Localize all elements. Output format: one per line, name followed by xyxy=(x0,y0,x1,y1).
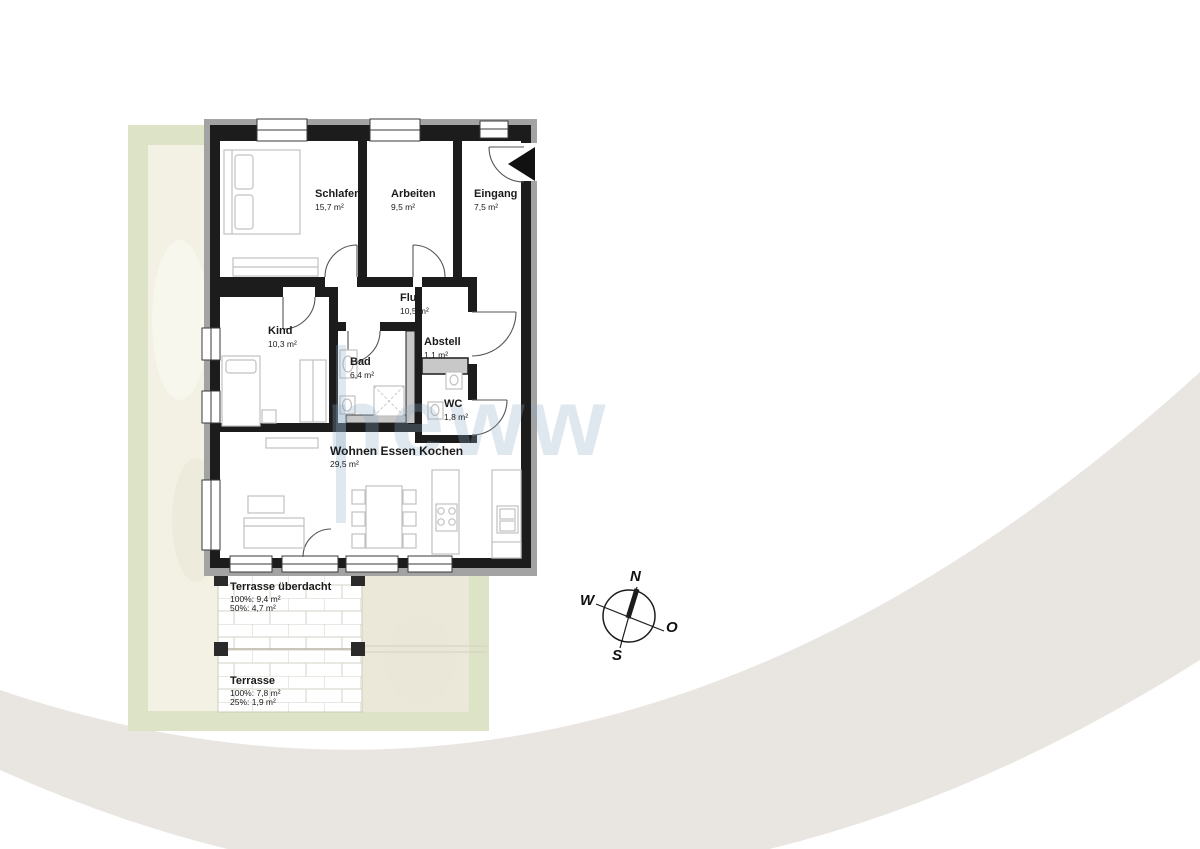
shelf-kind xyxy=(262,410,276,423)
label-terrasse-ueberdacht: Terrasse überdacht 100%: 9,4 m² 50%: 4,7… xyxy=(230,582,331,613)
room-name: Arbeiten xyxy=(391,189,436,201)
window xyxy=(480,121,508,138)
outdoor-area-line: 100%: 7,8 m² xyxy=(230,689,281,698)
window xyxy=(202,328,220,360)
label-terrasse: Terrasse 100%: 7,8 m² 25%: 1,9 m² xyxy=(230,676,281,707)
washbasin-wc xyxy=(446,372,462,389)
window xyxy=(202,391,220,423)
room-label-schlafen: Schlafen 15,7 m² xyxy=(315,189,361,211)
compass-east-label: O xyxy=(666,619,678,636)
room-label-wc: WC 1,8 m² xyxy=(444,399,468,421)
compass-needle xyxy=(628,589,637,618)
room-area: 15,7 m² xyxy=(315,203,361,212)
floorplan-page: neww Schlafen 15,7 m² Arbeiten 9,5 m² Ei… xyxy=(0,0,1200,849)
room-label-kind: Kind 10,3 m² xyxy=(268,326,297,348)
bed-schlafen xyxy=(224,150,300,234)
compass-south-label: S xyxy=(612,647,622,664)
room-name: Schlafen xyxy=(315,189,361,201)
compass-north-label: N xyxy=(630,568,641,585)
room-area: 6,4 m² xyxy=(350,371,374,380)
kitchen-counter xyxy=(492,470,521,558)
room-area: 1,1 m² xyxy=(424,351,461,360)
outdoor-area-line: 100%: 9,4 m² xyxy=(230,595,331,604)
room-area: 1,8 m² xyxy=(444,413,468,422)
room-area: 29,5 m² xyxy=(330,460,463,469)
window xyxy=(370,119,420,141)
shower-bad xyxy=(374,386,404,416)
room-area: 7,5 m² xyxy=(474,203,517,212)
terrace-door xyxy=(346,556,398,572)
room-area: 10,5 m² xyxy=(400,307,429,316)
sofa xyxy=(244,518,304,548)
room-name: Kind xyxy=(268,326,297,338)
room-name: Eingang xyxy=(474,189,517,201)
watermark-logo-bar xyxy=(336,345,346,523)
sideboard xyxy=(266,438,318,448)
bed-kind xyxy=(222,356,260,426)
terrace-post xyxy=(214,642,228,656)
terrace-post xyxy=(351,642,365,656)
coffee-table xyxy=(248,496,284,513)
wardrobe-kind xyxy=(300,360,326,422)
compass-icon xyxy=(596,587,664,648)
compass-west-label: W xyxy=(580,592,594,609)
room-label-wohnen: Wohnen Essen Kochen 29,5 m² xyxy=(330,445,463,469)
room-label-bad: Bad 6,4 m² xyxy=(350,357,374,379)
room-label-flur: Flur 10,5 m² xyxy=(400,293,429,315)
outdoor-name: Terrasse xyxy=(230,676,281,688)
room-label-arbeiten: Arbeiten 9,5 m² xyxy=(391,189,436,211)
room-label-abstell: Abstell 1,1 m² xyxy=(424,337,461,359)
terrace-door xyxy=(230,556,272,572)
dining-table xyxy=(366,486,402,548)
kitchen-island xyxy=(432,470,459,554)
room-name: Wohnen Essen Kochen xyxy=(330,445,463,458)
window xyxy=(202,480,220,550)
room-name: Abstell xyxy=(424,337,461,349)
wardrobe-schlafen xyxy=(233,258,318,276)
outdoor-area-line: 25%: 1,9 m² xyxy=(230,698,281,707)
window xyxy=(257,119,307,141)
outdoor-area-line: 50%: 4,7 m² xyxy=(230,604,331,613)
room-area: 9,5 m² xyxy=(391,203,436,212)
terrace-door xyxy=(282,556,338,572)
room-name: Flur xyxy=(400,293,429,305)
outdoor-name: Terrasse überdacht xyxy=(230,582,331,594)
room-area: 10,3 m² xyxy=(268,340,297,349)
room-name: WC xyxy=(444,399,468,411)
toilet-wc xyxy=(428,402,443,419)
floorplan-graphic xyxy=(0,0,1200,849)
terrace-door xyxy=(408,556,452,572)
room-name: Bad xyxy=(350,357,374,369)
room-label-eingang: Eingang 7,5 m² xyxy=(474,189,517,211)
